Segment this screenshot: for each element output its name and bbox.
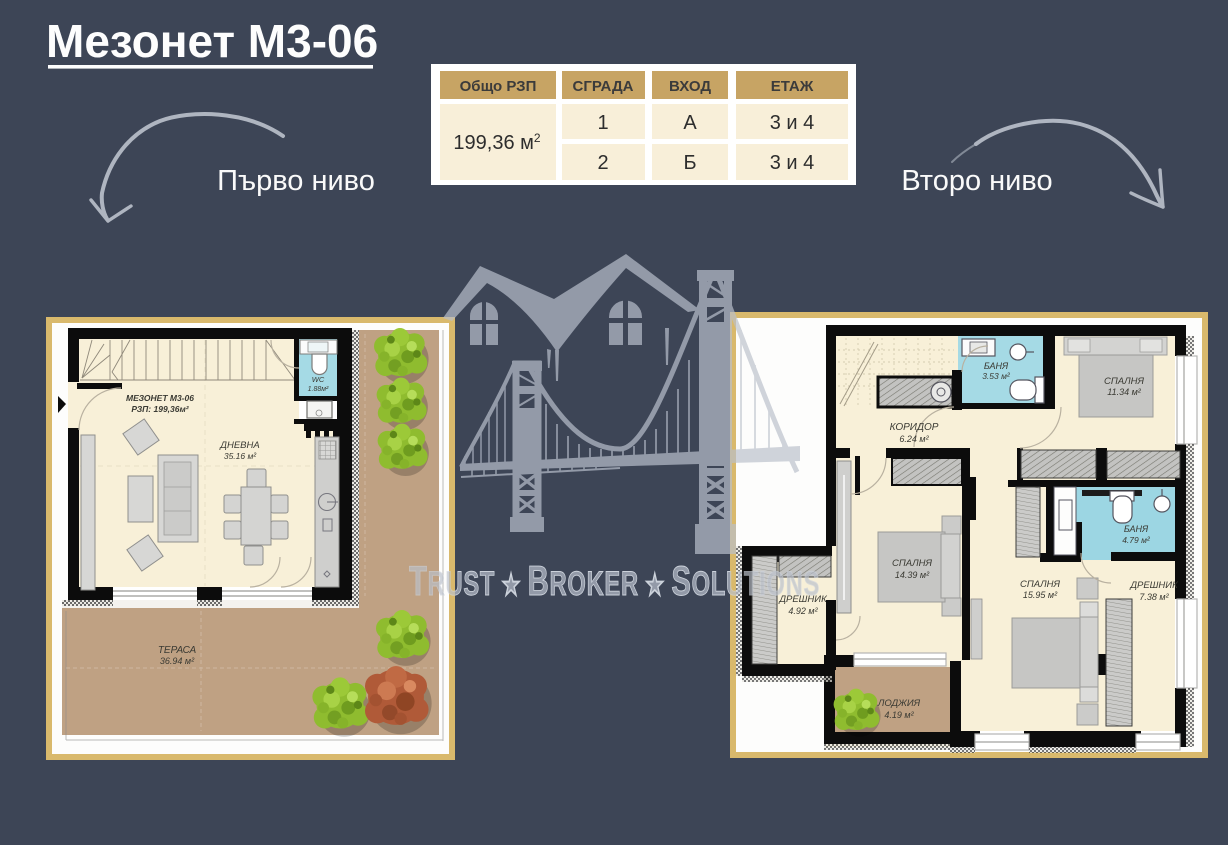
svg-text:МЕЗОНЕТ М3-06: МЕЗОНЕТ М3-06 <box>126 393 194 403</box>
svg-text:Общо РЗП: Общо РЗП <box>460 78 537 95</box>
svg-text:3.53 м²: 3.53 м² <box>982 371 1011 381</box>
svg-text:4.92 м²: 4.92 м² <box>788 606 818 616</box>
svg-text:СПАЛНЯ: СПАЛНЯ <box>1020 579 1060 590</box>
svg-text:Мезонет М3-06: Мезонет М3-06 <box>46 15 378 67</box>
svg-text:БАНЯ: БАНЯ <box>1124 524 1149 534</box>
svg-text:15.95 м²: 15.95 м² <box>1023 590 1058 600</box>
svg-text:ДНЕВНА: ДНЕВНА <box>219 440 259 451</box>
svg-text:199,36 м2: 199,36 м2 <box>453 131 540 154</box>
svg-text:3 и 4: 3 и 4 <box>770 112 815 134</box>
svg-text:ВХОД: ВХОД <box>669 78 711 95</box>
svg-text:Б: Б <box>683 152 696 174</box>
svg-text:11.34 м²: 11.34 м² <box>1107 387 1142 397</box>
svg-text:2: 2 <box>597 152 608 174</box>
svg-text:4.79 м²: 4.79 м² <box>1122 535 1151 545</box>
svg-text:ТЕРАСА: ТЕРАСА <box>158 645 197 656</box>
svg-text:СПАЛНЯ: СПАЛНЯ <box>1104 376 1144 387</box>
svg-text:14.39 м²: 14.39 м² <box>895 570 930 580</box>
svg-text:БАНЯ: БАНЯ <box>984 361 1009 371</box>
svg-text:3 и 4: 3 и 4 <box>770 152 815 174</box>
svg-text:СПАЛНЯ: СПАЛНЯ <box>892 558 932 569</box>
svg-text:ЛОДЖИЯ: ЛОДЖИЯ <box>877 698 921 709</box>
svg-text:WC: WC <box>312 375 325 384</box>
svg-text:ДРЕШНИК: ДРЕШНИК <box>1129 580 1179 591</box>
svg-text:36.94 м²: 36.94 м² <box>160 656 195 666</box>
svg-text:ЕТАЖ: ЕТАЖ <box>771 78 814 95</box>
svg-text:4.19 м²: 4.19 м² <box>884 710 914 720</box>
svg-text:6.24 м²: 6.24 м² <box>899 434 929 444</box>
svg-text:Второ ниво: Второ ниво <box>901 165 1052 197</box>
svg-text:7.38 м²: 7.38 м² <box>1139 592 1169 602</box>
svg-text:КОРИДОР: КОРИДОР <box>890 422 939 433</box>
svg-text:РЗП: 199,36м²: РЗП: 199,36м² <box>131 404 189 414</box>
svg-text:А: А <box>683 112 697 134</box>
svg-text:СГРАДА: СГРАДА <box>573 78 634 95</box>
svg-text:1: 1 <box>597 112 608 134</box>
svg-text:35.16 м²: 35.16 м² <box>224 451 257 461</box>
svg-text:Първо ниво: Първо ниво <box>217 165 375 197</box>
svg-text:1.88м²: 1.88м² <box>308 386 329 393</box>
